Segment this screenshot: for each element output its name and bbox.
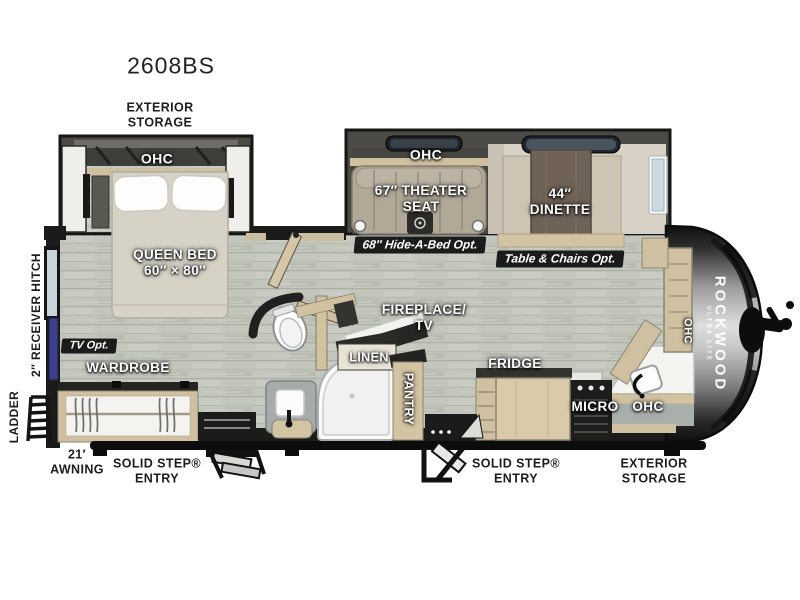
brand-logo: ROCKWOOD ULTRA LITE	[705, 276, 728, 393]
hide-a-bed-badge: 68″ Hide-A-Bed Opt.	[354, 237, 487, 254]
vanity-sink-shape	[266, 381, 316, 438]
bedroom-ohc-label: OHC	[141, 151, 173, 168]
floorplan-graphic	[0, 0, 800, 600]
table-chairs-badge: Table & Chairs Opt.	[496, 251, 625, 268]
fridge-shape	[476, 368, 572, 440]
wardrobe-label: WARDROBE	[86, 360, 169, 376]
ladder-label: LADDER	[7, 391, 21, 443]
entry-well-rear	[198, 412, 256, 440]
floorplan-page: 2608BS EXTERIOR STORAGE OHC QUEEN BED 60…	[0, 0, 800, 600]
fridge-label: FRIDGE	[488, 356, 541, 372]
entry-well-front	[425, 414, 483, 438]
tongue-jack	[739, 301, 794, 353]
pantry-label: PANTRY	[401, 373, 416, 425]
rear-window	[44, 246, 60, 320]
exterior-storage-bottom-label: EXTERIOR STORAGE	[620, 456, 687, 486]
receiver-hitch-label: 2″ RECEIVER HITCH	[29, 253, 43, 377]
kitchen-ohc-label: OHC	[632, 399, 663, 415]
entry-front-label: SOLID STEP® ENTRY	[472, 456, 560, 486]
model-number: 2608BS	[127, 52, 215, 79]
queen-bed-label: QUEEN BED 60″ × 80″	[133, 247, 217, 279]
brand-subtitle: ULTRA LITE	[705, 276, 711, 393]
dinette-label: 44″ DINETTE	[530, 186, 591, 218]
living-ohc-label: OHC	[410, 147, 442, 164]
queen-bed-shape	[112, 172, 228, 318]
tv-opt-badge: TV Opt.	[61, 339, 118, 354]
linen-label: LINEN	[349, 351, 389, 366]
steps-rear	[206, 450, 264, 478]
ladder-shape	[28, 397, 50, 441]
wardrobe-shape	[58, 381, 198, 442]
fireplace-tv-label: FIREPLACE/ TV	[382, 302, 466, 334]
entry-rear-label: SOLID STEP® ENTRY	[113, 456, 201, 486]
wall-ohc-label: OHC	[681, 318, 694, 344]
micro-label: MICRO	[572, 399, 619, 415]
frame-rail	[90, 441, 706, 456]
awning-label: 21′ AWNING	[50, 447, 104, 477]
brand-name: ROCKWOOD	[712, 276, 727, 393]
exterior-storage-top-label: EXTERIOR STORAGE	[126, 100, 193, 130]
tv-option-shape	[49, 318, 58, 380]
theater-seat-label: 67″ THEATER SEAT	[375, 183, 467, 215]
